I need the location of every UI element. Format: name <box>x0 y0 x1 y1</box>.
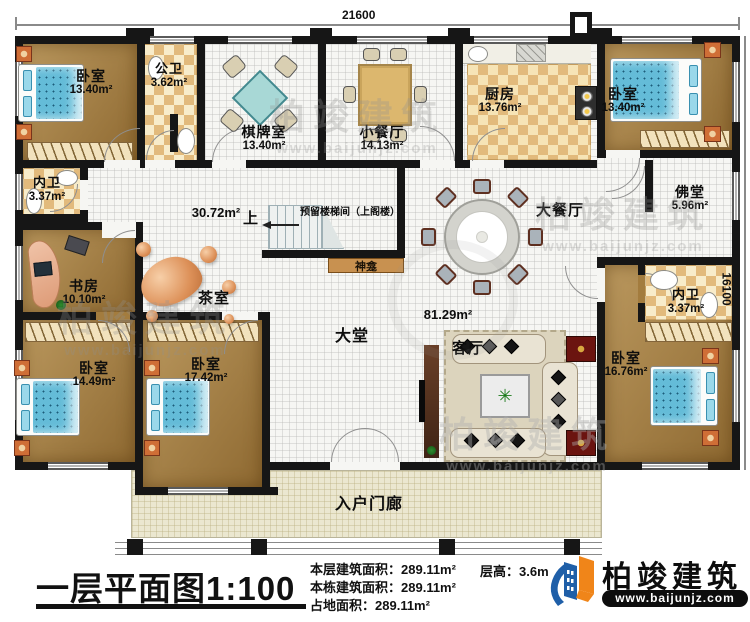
door-opening <box>470 160 504 168</box>
dimension-line-top <box>15 24 740 26</box>
chair <box>414 86 427 103</box>
window <box>48 462 108 470</box>
label-buddha-hall: 佛堂 5.96m² <box>658 184 722 213</box>
label-bedroom-bottomcenter: 卧室 17.42m² <box>172 356 240 385</box>
wall-segment <box>197 36 205 162</box>
porch-step-line <box>115 542 602 543</box>
label-bedroom-bottomleft: 卧室 14.49m² <box>60 360 128 389</box>
label-bedroom-topright: 卧室 13.40m² <box>588 86 658 115</box>
tv <box>419 380 425 422</box>
bed <box>146 378 210 436</box>
coffee-table: ✳ <box>480 374 530 418</box>
entrance-opening <box>330 462 400 470</box>
label-grand-dining: 大餐厅 <box>520 202 600 219</box>
tv-wall <box>424 345 439 458</box>
sink <box>177 128 195 154</box>
kitchen-sink <box>468 46 488 62</box>
label-stairs-up: 上 <box>240 210 262 227</box>
wardrobe <box>645 322 732 342</box>
porch-column <box>251 539 267 555</box>
dimension-tick <box>738 17 740 30</box>
window <box>168 487 228 495</box>
wall-segment <box>15 214 88 222</box>
wall-segment <box>645 160 653 212</box>
label-small-dining: 小餐厅 14.13m² <box>346 124 418 153</box>
nightstand <box>702 348 719 364</box>
plant <box>427 446 436 455</box>
nightstand <box>16 46 32 62</box>
wall-pier <box>448 28 470 38</box>
label-kitchen: 厨房 13.76m² <box>462 86 538 115</box>
nightstand <box>14 440 30 456</box>
porch-column <box>439 539 455 555</box>
nightstand <box>14 360 30 376</box>
sheet-title: 一层平面图1:100 <box>36 562 295 610</box>
label-porch: 入户门廊 <box>304 496 434 514</box>
brand-url: www.baijunjz.com <box>602 590 748 607</box>
floor-plan-sheet: 21600 16100 神龛 <box>0 0 750 622</box>
tea-stone <box>136 242 151 257</box>
window <box>732 62 740 122</box>
window <box>732 172 740 220</box>
dining-table-round <box>444 199 520 275</box>
tea-stone <box>146 310 158 322</box>
kitchen-prep-counter <box>516 44 546 62</box>
label-tea-room: 茶室 <box>176 290 252 307</box>
door-opening <box>606 150 640 158</box>
window <box>642 462 708 470</box>
chair <box>421 228 436 246</box>
label-study: 书房 10.10m² <box>52 278 116 307</box>
wall-segment <box>597 257 740 265</box>
porch-column <box>127 539 143 555</box>
stair-arrow-line <box>271 224 299 226</box>
shrine-shelf: 神龛 <box>328 258 404 273</box>
wall-segment <box>135 222 143 462</box>
dimension-top-value: 21600 <box>338 8 379 22</box>
nightstand <box>704 42 721 58</box>
window <box>228 36 292 44</box>
end-table <box>566 430 596 456</box>
label-inner-bath-right: 内卫 3.37m² <box>656 288 716 316</box>
chair <box>528 228 543 246</box>
chimney <box>570 12 592 38</box>
porch-step-line <box>115 554 602 555</box>
nightstand <box>144 360 160 376</box>
stat-row: 本层建筑面积：289.11m² <box>310 561 456 579</box>
window <box>357 36 427 44</box>
label-chess-room: 棋牌室 13.40m² <box>228 124 300 153</box>
nightstand <box>16 124 32 140</box>
label-bedroom-bottomright: 卧室 16.76m² <box>590 350 662 379</box>
door-opening <box>145 160 175 168</box>
dimension-tick <box>15 17 17 30</box>
dining-table-small <box>358 64 412 126</box>
computer-monitor <box>33 261 52 277</box>
label-living-room: 客厅 <box>436 340 500 357</box>
label-bedroom-topleft: 卧室 13.40m² <box>58 68 124 97</box>
porch-step-line <box>115 548 602 549</box>
door-opening <box>420 160 455 168</box>
door-opening <box>96 312 130 320</box>
window <box>15 246 23 300</box>
dimension-right-value: 16100 <box>720 268 734 309</box>
brand-logo-icon <box>544 552 600 612</box>
stat-row: 本栋建筑面积：289.11m² <box>310 579 456 597</box>
label-public-bath: 公卫 3.62m² <box>140 62 198 90</box>
floor-height: 层高：3.6m <box>480 561 549 580</box>
chair <box>343 86 356 103</box>
chair <box>363 48 380 61</box>
stat-row: 占地面积：289.11m² <box>310 597 456 615</box>
chair <box>473 179 491 194</box>
stair-arrow-head <box>262 221 271 229</box>
label-living-area: 81.29m² <box>406 308 490 323</box>
label-stair-note: 预留楼梯间（上阁楼） <box>300 207 404 219</box>
window <box>150 36 194 44</box>
label-inner-bath-left: 内卫 3.37m² <box>18 176 76 204</box>
area-stats: 本层建筑面积：289.11m² 本栋建筑面积：289.11m² 占地面积：289… <box>310 561 456 615</box>
wall-segment <box>318 36 326 160</box>
title-underline <box>36 604 306 609</box>
door-opening <box>638 275 645 303</box>
nightstand <box>144 440 160 456</box>
label-lobby: 大堂 <box>320 328 384 346</box>
tea-stone <box>224 314 234 324</box>
tea-stone <box>200 246 217 263</box>
wall-pier <box>310 28 332 38</box>
chair <box>473 280 491 295</box>
door-opening <box>80 180 88 210</box>
wall-segment <box>262 250 405 258</box>
nightstand <box>704 126 721 142</box>
door-opening <box>597 268 605 302</box>
wall-segment <box>262 312 270 495</box>
wall-segment <box>15 160 597 168</box>
window <box>622 36 692 44</box>
window <box>474 36 548 44</box>
dimension-line-right <box>744 36 746 470</box>
chair <box>390 48 407 61</box>
window <box>732 350 740 422</box>
nightstand <box>702 430 719 446</box>
